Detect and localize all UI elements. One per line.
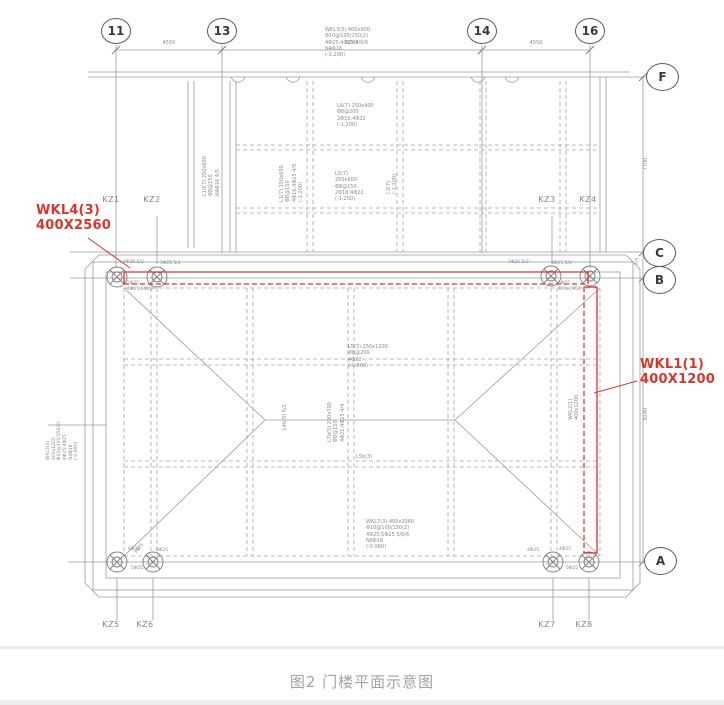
dim-right-top: 7700 xyxy=(643,144,649,184)
note-center-rot-2: L4b(5) 5/2 xyxy=(282,396,288,430)
column-label-kz7: KZ7 xyxy=(533,620,561,629)
grid-lines xyxy=(48,45,646,620)
note-center-small: L5b(3) xyxy=(356,454,372,460)
note-center-rot: L7b(5) 200x700 Φ8@150 4Φ22;4Φ25 4/4 xyxy=(327,384,346,442)
dim-right-small: 775 xyxy=(635,254,640,270)
column-label-kz3: KZ3 xyxy=(533,195,561,204)
column-kz4 xyxy=(580,266,600,286)
frame-columns xyxy=(107,266,600,572)
note-top-beam: WKL3(3) 400x900 Φ10@100/150(2) 4Φ25;4Φ25… xyxy=(325,27,370,58)
column-label-kz4: KZ4 xyxy=(574,195,602,204)
lower-plan-beams xyxy=(124,288,600,556)
divider-top xyxy=(0,646,724,649)
dim-top-3: 4550 xyxy=(514,40,558,46)
grid-bubble-f: F xyxy=(646,63,679,91)
column-label-kz6: KZ6 xyxy=(131,620,159,629)
rebar-mark-4: 3Φ25 5/2 xyxy=(551,261,572,267)
column-label-kz2: KZ2 xyxy=(138,195,166,204)
note-bottom-beam: WKL7(3) 400x2060 Φ10@100/150(2) 4Φ25;5Φ2… xyxy=(366,519,414,550)
grid-bubble-b: B xyxy=(643,266,676,294)
red-callout-wkl4: WKL4(3) 400X2560 xyxy=(36,203,111,234)
divider-bottom xyxy=(0,700,724,705)
dimension-ticks xyxy=(112,46,647,566)
note-center-block: L5(3) 250x1200 Φ8@200 4Φ22 (-0.060) xyxy=(348,344,388,369)
note-upper-3-rot: L1(7) 250x600 Φ8@150 4Φ16;4Φ25 4/5 (-1.2… xyxy=(279,156,304,202)
rebar-mark-bl3: 5Φ25 xyxy=(131,566,143,572)
note-upper-1: L6(7) 250x400 Φ8@200 2Φ16;4Φ22 (-1.200) xyxy=(337,103,374,128)
dim-top-1: 4550 xyxy=(147,40,191,46)
lower-plan-walls xyxy=(85,255,640,597)
grid-bubble-c: C xyxy=(643,239,676,267)
note-upper-2: L5(7) 250x600 Φ8@150 2Φ16;4Φ22 (-1.200) xyxy=(335,171,364,202)
grid-bubble-13: 13 xyxy=(207,18,237,44)
floor-plan-figure: 11 13 14 16 F C B A 4550 9240 4550 7700 … xyxy=(0,0,724,705)
grid-bubble-16: 16 xyxy=(575,18,605,44)
highlighted-beam-right xyxy=(584,287,637,553)
note-upper-5-rot: L3(7) (-1.200) xyxy=(386,168,399,194)
rebar-mark-below-right: 5Φ25 400x1950 xyxy=(558,281,581,292)
note-upper-4-rot: L10(7) 250x600 Φ8@150 N4Φ16 4/5 xyxy=(202,150,221,196)
grid-bubble-11: 11 xyxy=(101,18,131,44)
figure-caption: 图2 门楼平面示意图 xyxy=(0,671,724,692)
rebar-mark-below-left: 5Φ25 4Φ25;3Φ20 xyxy=(127,281,153,292)
column-label-kz5: KZ5 xyxy=(97,620,125,629)
note-left-outside-rot: WKL5(3) 400x1200 Φ10@100/150(2) 4Φ25;4Φ2… xyxy=(46,418,80,460)
rebar-mark-2: 3Φ25 5/2 xyxy=(160,261,181,267)
rebar-mark-br3: 5Φ25 xyxy=(566,566,578,572)
grid-bubble-a: A xyxy=(644,547,677,575)
rebar-mark-bl2: 6Φ25 xyxy=(156,548,168,554)
column-label-kz8: KZ8 xyxy=(570,620,598,629)
note-right-inner-rot: WKL2(1) 400x1200 xyxy=(568,364,581,420)
rebar-mark-1: 4Φ25 5/2 xyxy=(123,260,144,266)
rebar-mark-3: 7Φ25 5/2 xyxy=(508,260,529,266)
dim-right-bottom: 9240 xyxy=(643,394,649,434)
rebar-mark-br1: 4Φ25 xyxy=(527,548,539,554)
rebar-mark-br2: 4Φ25 xyxy=(559,547,571,553)
red-callout-wkl1: WKL1(1) 400X1200 xyxy=(640,357,715,388)
grid-bubble-14: 14 xyxy=(467,18,497,44)
